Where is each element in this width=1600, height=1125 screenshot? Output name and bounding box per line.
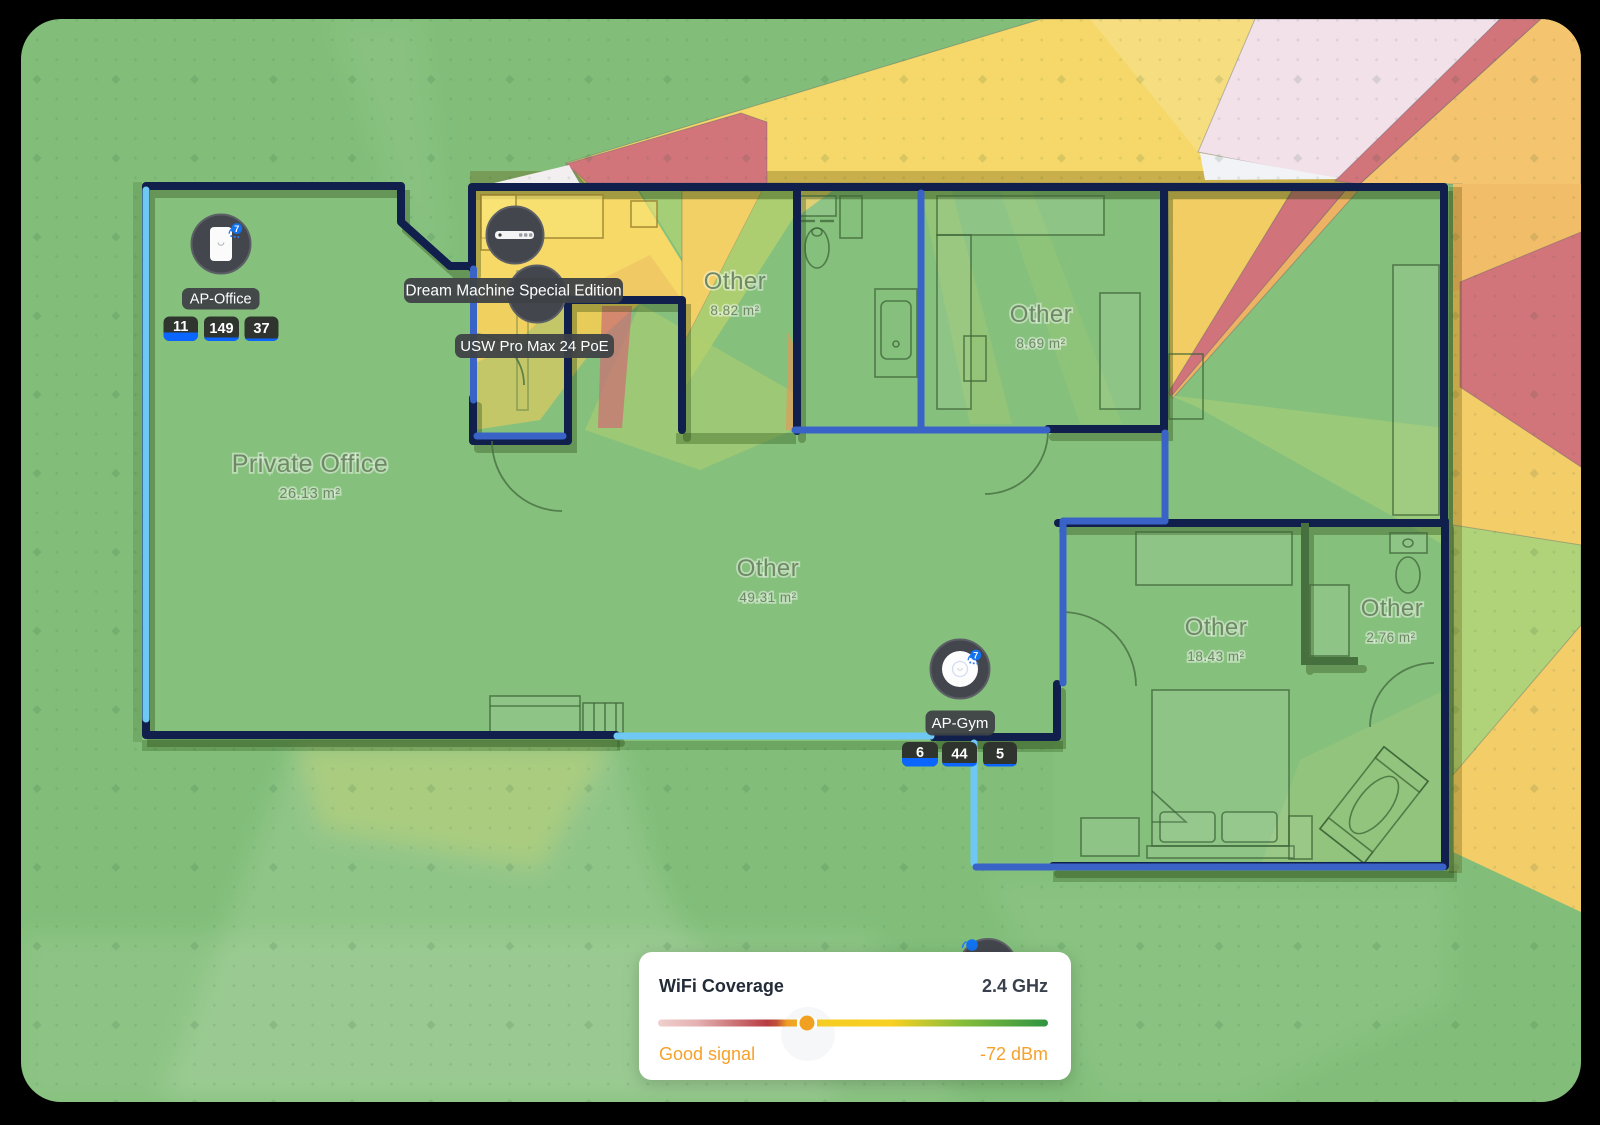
svg-text:Other: Other — [737, 555, 800, 582]
svg-text:7: 7 — [234, 224, 239, 234]
svg-text:8.69 m²: 8.69 m² — [1016, 336, 1065, 351]
svg-text:11: 11 — [173, 319, 188, 335]
svg-text:8.82 m²: 8.82 m² — [710, 303, 759, 318]
svg-text:149: 149 — [209, 321, 233, 337]
svg-text:18.43 m²: 18.43 m² — [1187, 649, 1244, 664]
svg-text:6: 6 — [916, 745, 924, 761]
svg-text:USW Pro Max 24 PoE: USW Pro Max 24 PoE — [460, 338, 608, 355]
svg-text:7: 7 — [973, 651, 978, 661]
svg-text:Private Office: Private Office — [232, 450, 389, 478]
svg-text:AP-Office: AP-Office — [190, 292, 252, 308]
svg-text:26.13 m²: 26.13 m² — [279, 486, 340, 502]
svg-text:Other: Other — [1010, 301, 1073, 328]
svg-text:WiFi Coverage: WiFi Coverage — [659, 976, 784, 996]
svg-text:49.31 m²: 49.31 m² — [739, 590, 796, 605]
svg-text:37: 37 — [253, 321, 269, 337]
svg-text:2.76 m²: 2.76 m² — [1366, 630, 1415, 645]
svg-text:44: 44 — [951, 747, 967, 763]
svg-text:5: 5 — [996, 747, 1004, 763]
svg-text:Good signal: Good signal — [659, 1044, 755, 1064]
svg-text:Dream Machine Special Edition: Dream Machine Special Edition — [405, 283, 621, 300]
svg-text:Other: Other — [1185, 614, 1248, 641]
svg-text:2.4 GHz: 2.4 GHz — [982, 976, 1048, 996]
svg-text:-72 dBm: -72 dBm — [980, 1044, 1048, 1064]
svg-text:Other: Other — [704, 268, 767, 295]
svg-text:Other: Other — [1361, 595, 1424, 622]
svg-text:AP-Gym: AP-Gym — [932, 715, 989, 732]
